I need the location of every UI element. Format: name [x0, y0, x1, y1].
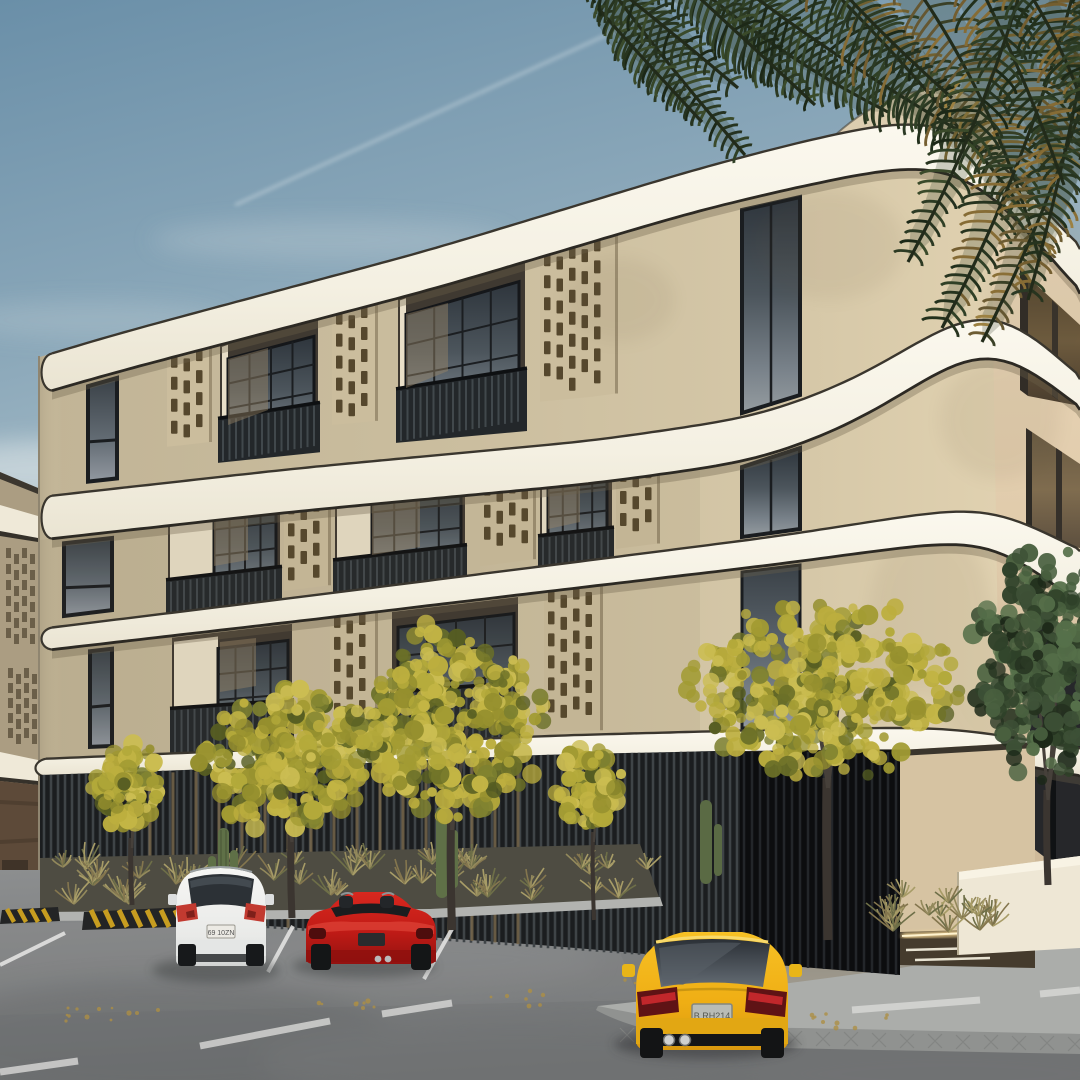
svg-text:69 10ZN: 69 10ZN [208, 930, 235, 937]
